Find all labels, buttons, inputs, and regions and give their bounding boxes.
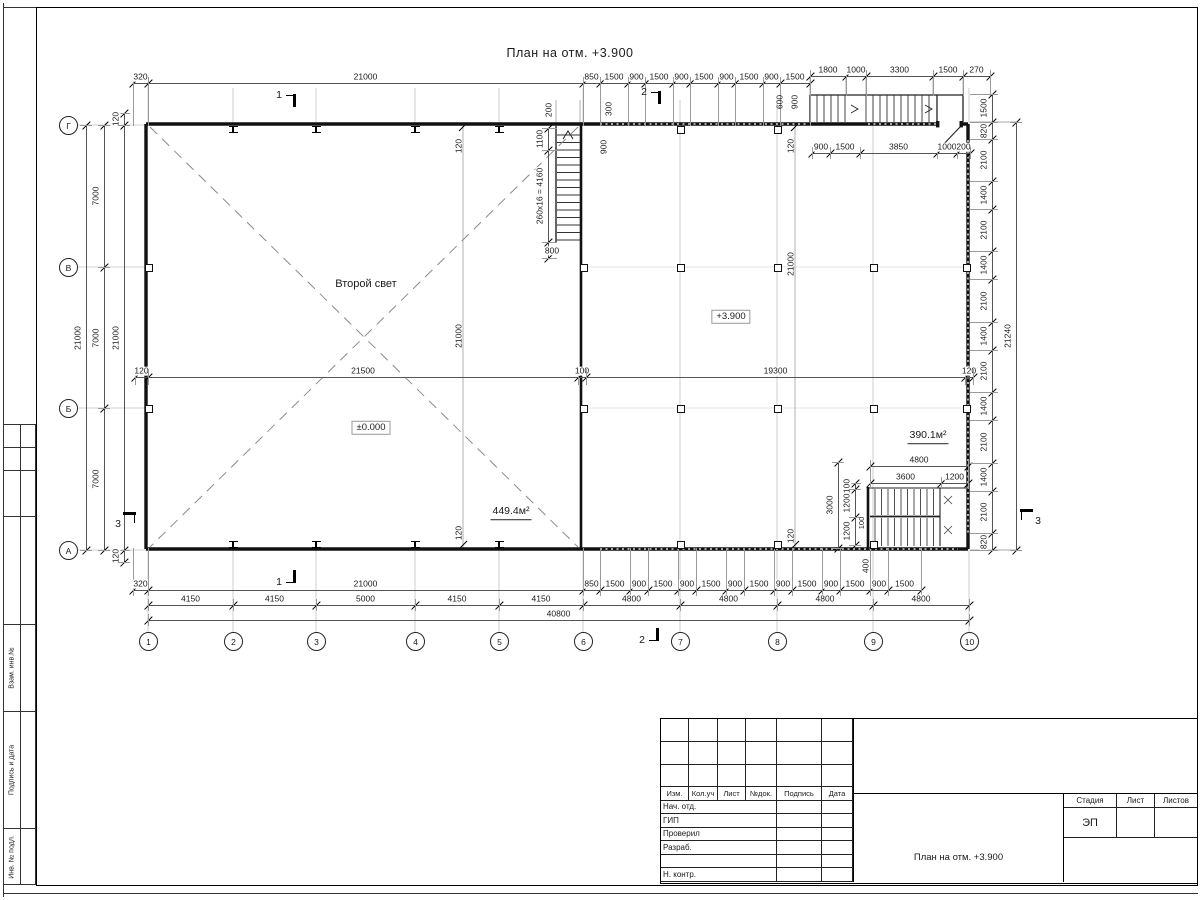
dim-line bbox=[812, 153, 970, 154]
steel-column-mark bbox=[498, 541, 499, 548]
section-mark-number: 3 bbox=[115, 518, 121, 530]
dim-label: 3850 bbox=[888, 143, 909, 152]
margin-empty-cell bbox=[21, 448, 35, 470]
dim-label: 1500 bbox=[739, 73, 760, 82]
column-mark bbox=[677, 126, 686, 135]
dim-label: 820 bbox=[979, 122, 988, 138]
dim-label: 900 bbox=[823, 580, 839, 589]
column-mark bbox=[145, 405, 154, 414]
dim-label: 4150 bbox=[447, 595, 468, 604]
witness-line bbox=[866, 70, 867, 96]
witness-line bbox=[969, 614, 970, 626]
dim-label: 1500 bbox=[797, 580, 818, 589]
witness-line bbox=[542, 258, 557, 259]
titleblock-cell bbox=[746, 765, 777, 787]
plan-label: 900 bbox=[599, 140, 608, 154]
witness-line bbox=[583, 77, 584, 126]
dim-label: 1400 bbox=[979, 185, 988, 206]
margin-row bbox=[4, 448, 35, 471]
dim-label: 850 bbox=[583, 73, 599, 82]
witness-line bbox=[499, 599, 500, 611]
titleblock-cell bbox=[822, 742, 853, 765]
dim-label: 900 bbox=[679, 580, 695, 589]
witness-line bbox=[648, 548, 649, 596]
margin-label: Подпись и дата bbox=[9, 745, 16, 795]
witness-line bbox=[680, 599, 681, 611]
titleblock-cell bbox=[822, 868, 853, 882]
dim-label: 3000 bbox=[825, 495, 834, 516]
section-mark-number: 3 bbox=[1035, 515, 1041, 527]
margin-row: Инв. № подл. bbox=[4, 829, 35, 884]
witness-line bbox=[970, 420, 998, 421]
dim-label: 1500 bbox=[701, 580, 722, 589]
titleblock-role-cell: Проверил bbox=[661, 828, 777, 842]
witness-line bbox=[970, 491, 998, 492]
dim-label: 2100 bbox=[979, 220, 988, 241]
axis-bubble: Г bbox=[59, 116, 78, 135]
witness-line bbox=[148, 77, 149, 126]
dim-line bbox=[104, 125, 105, 550]
witness-line bbox=[921, 548, 922, 596]
witness-line bbox=[542, 150, 557, 151]
dim-label: 4150 bbox=[180, 595, 201, 604]
dim-label: 270 bbox=[968, 66, 984, 75]
titleblock-cell bbox=[777, 814, 822, 828]
steel-column-mark bbox=[498, 126, 499, 133]
dim-label: 900 bbox=[718, 73, 734, 82]
dim-label: 21240 bbox=[1003, 323, 1012, 349]
dim-label: 320 bbox=[132, 580, 148, 589]
section-mark-flag bbox=[656, 628, 659, 641]
dim-label: 1400 bbox=[979, 255, 988, 276]
titleblock-cell bbox=[777, 868, 822, 882]
dim-label: 21000 bbox=[73, 325, 82, 351]
dim-label: 1800 bbox=[818, 66, 839, 75]
dim-label: 2100 bbox=[979, 150, 988, 171]
dim-label: 2100 bbox=[979, 290, 988, 311]
plan-label: Второй свет bbox=[335, 278, 396, 290]
witness-line bbox=[148, 614, 149, 626]
margin-empty-cell bbox=[21, 471, 35, 516]
witness-line bbox=[98, 408, 110, 409]
titleblock-cell bbox=[689, 719, 718, 742]
dim-label: 21000 bbox=[353, 580, 379, 589]
plan-label: 120 bbox=[454, 139, 463, 153]
margin-label-cell bbox=[4, 425, 21, 447]
margin-label-cell: Подпись и дата bbox=[4, 712, 21, 828]
witness-line bbox=[98, 267, 110, 268]
dim-label: 4150 bbox=[264, 595, 285, 604]
dim-label: 1400 bbox=[979, 326, 988, 347]
witness-line bbox=[970, 181, 998, 182]
dim-label: 4800 bbox=[718, 595, 739, 604]
axis-bubble: 10 bbox=[960, 632, 979, 651]
column-mark bbox=[870, 541, 879, 550]
plan-label: 120 bbox=[786, 529, 795, 543]
titleblock-cell bbox=[689, 765, 718, 787]
witness-line bbox=[80, 550, 92, 551]
organization-cell bbox=[1064, 838, 1197, 882]
plan-label: 300 bbox=[604, 102, 613, 116]
dim-label: 2100 bbox=[979, 361, 988, 382]
stage-header-cell: Листов bbox=[1155, 794, 1197, 808]
steel-column-mark bbox=[232, 126, 233, 133]
witness-line bbox=[80, 125, 92, 126]
column-mark bbox=[870, 405, 879, 414]
dim-line bbox=[148, 605, 969, 606]
witness-line bbox=[148, 369, 149, 385]
title-block: Изм.Кол.учЛист№док.ПодписьДатаНач. отд.Г… bbox=[660, 718, 1198, 884]
margin-label-cell bbox=[4, 517, 21, 625]
dim-line bbox=[870, 483, 968, 484]
titleblock-cell bbox=[777, 765, 822, 787]
sheet-count-cell bbox=[1155, 808, 1197, 838]
dim-label: 21500 bbox=[350, 367, 376, 376]
column-mark bbox=[774, 405, 783, 414]
witness-line bbox=[933, 70, 934, 96]
axis-bubble: 9 bbox=[864, 632, 883, 651]
dim-label: 850 bbox=[583, 580, 599, 589]
stage-value-cell: ЭП bbox=[1064, 808, 1117, 838]
column-mark bbox=[677, 264, 686, 273]
witness-line bbox=[970, 147, 971, 159]
steel-column-mark bbox=[414, 541, 415, 548]
dim-label: 1100 bbox=[535, 129, 544, 149]
titleblock-role-cell bbox=[661, 855, 777, 869]
dim-label: 900 bbox=[628, 73, 644, 82]
plan-label: 400 bbox=[861, 559, 870, 573]
titleblock-cell: Лист bbox=[718, 787, 746, 801]
margin-label: Инв. № подл. bbox=[9, 835, 16, 879]
witness-line bbox=[118, 125, 130, 126]
witness-line bbox=[970, 550, 998, 551]
dim-label: 4800 bbox=[909, 456, 930, 465]
dim-label: 1000 bbox=[846, 66, 867, 75]
witness-line bbox=[970, 463, 998, 464]
dim-label: 3300 bbox=[889, 66, 910, 75]
margin-row: Взам. инв.№ bbox=[4, 625, 35, 712]
dim-line bbox=[86, 125, 87, 550]
margin-empty-cell bbox=[21, 517, 35, 625]
witness-line bbox=[696, 548, 697, 596]
dim-label: 900 bbox=[631, 580, 647, 589]
margin-label-cell: Взам. инв.№ bbox=[4, 625, 21, 711]
witness-line bbox=[969, 599, 970, 611]
section-mark-flag bbox=[134, 515, 135, 523]
witness-line bbox=[941, 477, 942, 489]
axis-bubble: 8 bbox=[768, 632, 787, 651]
witness-line bbox=[645, 77, 646, 126]
witness-line bbox=[148, 548, 149, 596]
dim-label: 7000 bbox=[91, 327, 100, 348]
titleblock-cell bbox=[822, 765, 853, 787]
dim-label: 5000 bbox=[355, 595, 376, 604]
plan-label: 100 bbox=[858, 517, 866, 530]
axis-bubble: 7 bbox=[671, 632, 690, 651]
plan-label: 21000 bbox=[454, 324, 463, 348]
titleblock-cell: Дата bbox=[822, 787, 853, 801]
dim-label: 900 bbox=[727, 580, 743, 589]
dim-line bbox=[124, 113, 125, 562]
plan-label: 390.1м² bbox=[908, 430, 949, 444]
witness-line bbox=[628, 77, 629, 126]
witness-line bbox=[316, 599, 317, 611]
title-block-signature-grid: Изм.Кол.учЛист№док.ПодписьДатаНач. отд.Г… bbox=[661, 719, 853, 882]
titleblock-cell bbox=[746, 742, 777, 765]
witness-line bbox=[973, 369, 974, 385]
dim-line bbox=[1016, 122, 1017, 550]
titleblock-cell bbox=[822, 841, 853, 855]
dim-label: 40800 bbox=[546, 610, 572, 619]
witness-line bbox=[1010, 550, 1022, 551]
witness-line bbox=[690, 77, 691, 126]
titleblock-cell bbox=[718, 719, 746, 742]
witness-line bbox=[840, 548, 841, 596]
margin-empty-cell bbox=[21, 712, 35, 828]
witness-line bbox=[718, 77, 719, 126]
witness-line bbox=[860, 147, 861, 159]
dim-label: 4150 bbox=[531, 595, 552, 604]
titleblock-cell bbox=[661, 765, 689, 787]
witness-line bbox=[118, 562, 130, 563]
title-block-right: План на отм. +3.900 ЭП СтадияЛистЛистов bbox=[853, 719, 1197, 882]
titleblock-role-cell: Нач. отд. bbox=[661, 801, 777, 815]
column-mark bbox=[963, 405, 972, 414]
axis-bubble: А bbox=[59, 541, 78, 560]
section-mark-flag bbox=[658, 91, 661, 104]
axis-bubble: 3 bbox=[307, 632, 326, 651]
witness-line bbox=[810, 70, 811, 96]
witness-line bbox=[970, 209, 998, 210]
dim-label: 1500 bbox=[845, 580, 866, 589]
plan-label: 600 bbox=[775, 95, 784, 109]
witness-line bbox=[133, 77, 134, 126]
dim-label: 1400 bbox=[979, 396, 988, 417]
dim-label: 1200 bbox=[944, 473, 965, 482]
axis-bubble: 1 bbox=[139, 632, 158, 651]
dim-label: 320 bbox=[132, 73, 148, 82]
dim-line bbox=[148, 620, 969, 621]
witness-line bbox=[98, 125, 110, 126]
witness-line bbox=[233, 599, 234, 611]
dim-label: 21000 bbox=[111, 325, 120, 351]
titleblock-cell bbox=[746, 719, 777, 742]
dim-label: 900 bbox=[813, 143, 829, 152]
margin-row: Подпись и дата bbox=[4, 712, 35, 829]
plan-label: 900 bbox=[790, 95, 799, 109]
witness-line bbox=[849, 545, 861, 546]
dim-label: 1200 bbox=[842, 521, 851, 542]
witness-line bbox=[963, 70, 964, 96]
witness-line bbox=[586, 369, 587, 385]
witness-line bbox=[583, 599, 584, 611]
dim-label: 1500 bbox=[835, 143, 856, 152]
margin-label-cell bbox=[4, 448, 21, 470]
axis-bubble: 4 bbox=[406, 632, 425, 651]
witness-line bbox=[542, 242, 557, 243]
witness-line bbox=[849, 489, 861, 490]
witness-line bbox=[832, 548, 844, 549]
stage-header-cell: Стадия bbox=[1064, 794, 1117, 808]
witness-line bbox=[970, 251, 998, 252]
column-mark bbox=[870, 264, 879, 273]
dim-label: 2100 bbox=[979, 502, 988, 523]
dim-label: 900 bbox=[871, 580, 887, 589]
titleblock-cell bbox=[661, 742, 689, 765]
margin-row bbox=[4, 471, 35, 517]
dim-label: 1000 bbox=[937, 143, 958, 152]
witness-line bbox=[832, 462, 844, 463]
witness-line bbox=[873, 599, 874, 611]
titleblock-cell bbox=[822, 801, 853, 815]
titleblock-cell bbox=[777, 855, 822, 869]
witness-line bbox=[888, 548, 889, 596]
titleblock-cell bbox=[661, 719, 689, 742]
dim-label: 1500 bbox=[938, 66, 959, 75]
dim-line bbox=[855, 483, 856, 545]
dim-label: 19300 bbox=[763, 367, 789, 376]
dim-label: 900 bbox=[673, 73, 689, 82]
dim-line bbox=[133, 83, 810, 84]
witness-line bbox=[830, 147, 831, 159]
titleblock-cell bbox=[777, 719, 822, 742]
axis-bubble: В bbox=[59, 258, 78, 277]
titleblock-cell bbox=[822, 814, 853, 828]
dim-label: 4800 bbox=[621, 595, 642, 604]
witness-line bbox=[970, 350, 998, 351]
column-mark bbox=[580, 405, 589, 414]
axis-bubble: 5 bbox=[490, 632, 509, 651]
titleblock-cell bbox=[718, 765, 746, 787]
section-mark-flag bbox=[293, 570, 296, 583]
margin-row bbox=[4, 425, 35, 448]
sheet-number-cell bbox=[1117, 808, 1155, 838]
axis-bubble: Б bbox=[59, 399, 78, 418]
dim-line bbox=[838, 462, 839, 548]
dim-label: 900 bbox=[775, 580, 791, 589]
titleblock-cell bbox=[777, 841, 822, 855]
section-mark-flag bbox=[1021, 512, 1022, 520]
column-mark bbox=[774, 126, 783, 135]
titleblock-role-cell: Н. контр. bbox=[661, 868, 777, 882]
dim-label: 1500 bbox=[604, 73, 625, 82]
witness-line bbox=[968, 477, 969, 489]
witness-line bbox=[970, 139, 998, 140]
titleblock-cell bbox=[822, 719, 853, 742]
witness-line bbox=[1010, 122, 1022, 123]
witness-line bbox=[970, 94, 998, 95]
plan-label: 120 bbox=[786, 139, 795, 153]
drawing-title: План на отм. +3.900 bbox=[450, 46, 690, 60]
witness-line bbox=[415, 599, 416, 611]
witness-line bbox=[990, 70, 991, 96]
dim-label: 1500 bbox=[605, 580, 626, 589]
witness-line bbox=[792, 548, 793, 596]
titleblock-cell bbox=[822, 828, 853, 842]
titleblock-role-cell: Разраб. bbox=[661, 841, 777, 855]
margin-empty-cell bbox=[21, 425, 35, 447]
section-mark-flag bbox=[293, 94, 296, 107]
dim-label: 260x16 = 4160 bbox=[535, 167, 544, 225]
witness-line bbox=[600, 548, 601, 596]
dim-label: 1200 bbox=[842, 493, 851, 514]
witness-line bbox=[970, 322, 998, 323]
titleblock-cell bbox=[689, 742, 718, 765]
margin-label-cell: Инв. № подл. bbox=[4, 829, 21, 884]
witness-line bbox=[600, 77, 601, 126]
titleblock-cell bbox=[777, 801, 822, 815]
dim-line bbox=[133, 590, 921, 591]
titleblock-cell bbox=[777, 828, 822, 842]
witness-line bbox=[970, 392, 998, 393]
steel-column-mark bbox=[315, 126, 316, 133]
dim-label: 7000 bbox=[91, 186, 100, 207]
dim-label: 1400 bbox=[979, 467, 988, 488]
dim-label: 1500 bbox=[749, 580, 770, 589]
plan-label: 200 bbox=[544, 103, 553, 117]
titleblock-cell: Изм. bbox=[661, 787, 689, 801]
margin-empty-cell bbox=[21, 625, 35, 711]
column-mark bbox=[677, 405, 686, 414]
plan-label: +3.900 bbox=[711, 310, 750, 324]
titleblock-cell: Подпись bbox=[777, 787, 822, 801]
dim-line bbox=[870, 466, 968, 467]
margin-row bbox=[4, 517, 35, 626]
witness-line bbox=[763, 77, 764, 126]
dim-label: 3600 bbox=[895, 473, 916, 482]
margin-empty-cell bbox=[21, 829, 35, 884]
dim-label: 21000 bbox=[353, 73, 379, 82]
witness-line bbox=[98, 550, 110, 551]
drawing-sheet: 3202100085015009001500900150090015009001… bbox=[0, 0, 1200, 900]
dim-label: 1500 bbox=[694, 73, 715, 82]
titleblock-cell bbox=[777, 742, 822, 765]
axis-bubble: 2 bbox=[224, 632, 243, 651]
titleblock-cell bbox=[822, 855, 853, 869]
column-mark bbox=[677, 541, 686, 550]
witness-line bbox=[744, 548, 745, 596]
titleblock-cell: №док. bbox=[746, 787, 777, 801]
dim-label: 900 bbox=[763, 73, 779, 82]
section-mark-number: 2 bbox=[639, 634, 645, 646]
column-mark bbox=[580, 264, 589, 273]
steel-column-mark bbox=[315, 541, 316, 548]
document-designation-cell bbox=[854, 719, 1197, 794]
plan-label: 449.4м² bbox=[491, 506, 532, 520]
dim-label: 7000 bbox=[91, 469, 100, 490]
stage-header-cell: Лист bbox=[1117, 794, 1155, 808]
dim-label: 1500 bbox=[979, 98, 988, 119]
steel-column-mark bbox=[414, 126, 415, 133]
witness-line bbox=[970, 279, 998, 280]
witness-line bbox=[148, 599, 149, 611]
plan-label: ±0.000 bbox=[352, 421, 391, 435]
dim-label: 4800 bbox=[911, 595, 932, 604]
plan-label: 120 bbox=[454, 526, 463, 540]
dim-label: 1500 bbox=[894, 580, 915, 589]
plan-label: 21000 bbox=[786, 252, 795, 276]
dim-label: 820 bbox=[979, 533, 988, 549]
steel-column-mark bbox=[232, 541, 233, 548]
witness-line bbox=[870, 477, 871, 489]
section-mark-number: 2 bbox=[641, 86, 647, 98]
dim-label: 1500 bbox=[649, 73, 670, 82]
dim-label: 2100 bbox=[979, 431, 988, 452]
section-mark-number: 1 bbox=[276, 576, 282, 588]
titleblock-cell bbox=[718, 742, 746, 765]
witness-line bbox=[735, 77, 736, 126]
section-mark-number: 1 bbox=[276, 89, 282, 101]
